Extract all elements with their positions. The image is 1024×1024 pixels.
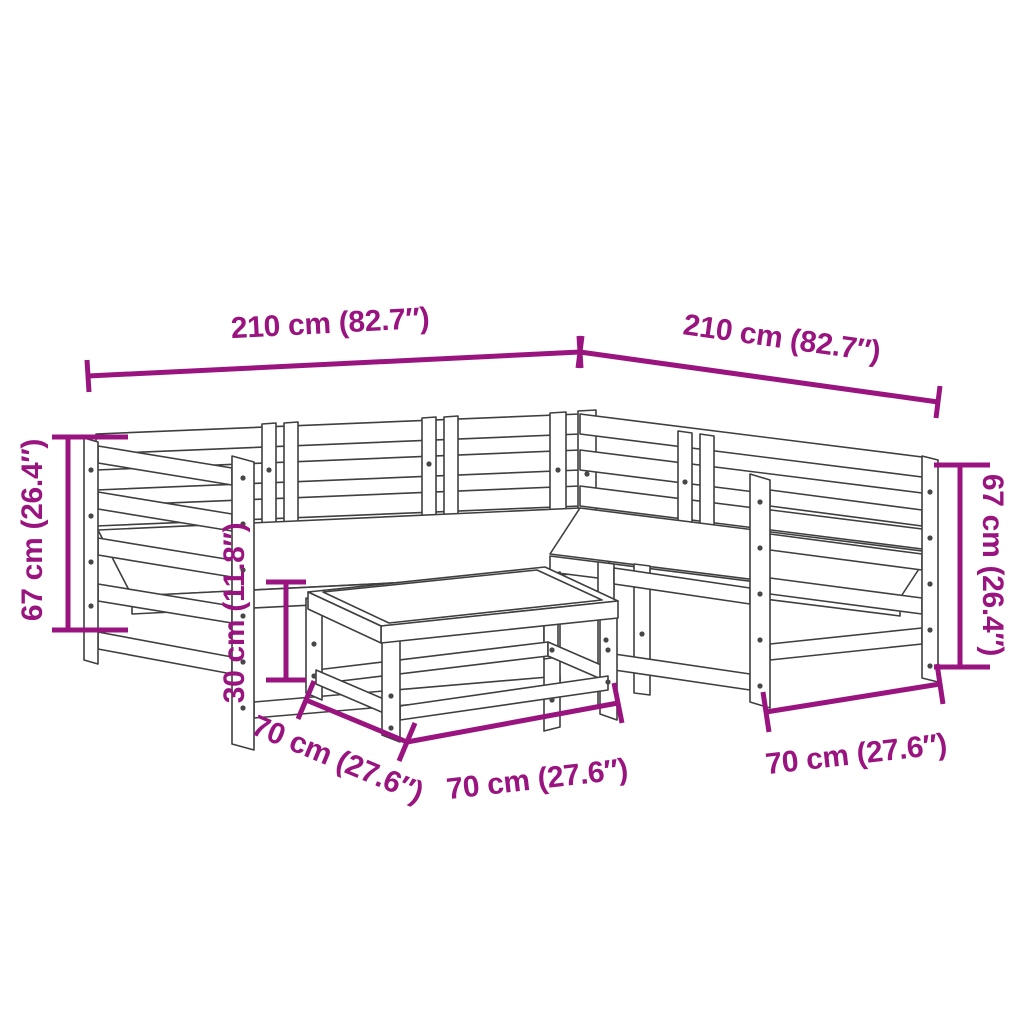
screw-icon bbox=[927, 663, 932, 668]
dim-tick bbox=[937, 664, 943, 704]
screw-icon bbox=[266, 467, 271, 472]
screw-icon bbox=[311, 673, 316, 678]
screw-icon bbox=[682, 479, 687, 484]
armrest-bottom-rail bbox=[98, 632, 232, 674]
dim-label-left-height: 67 cm (26.4″) bbox=[16, 439, 49, 621]
dim-label-top-right: 210 cm (82.7″) bbox=[681, 308, 882, 368]
screw-icon bbox=[555, 467, 560, 472]
screw-icon bbox=[757, 683, 762, 688]
screw-icon bbox=[549, 697, 554, 702]
screw-icon bbox=[88, 467, 93, 472]
screw-icon bbox=[311, 641, 316, 646]
dim-line-top-right bbox=[580, 352, 938, 402]
screw-icon bbox=[639, 631, 644, 636]
screw-icon bbox=[584, 471, 589, 476]
screw-icon bbox=[549, 647, 554, 652]
screw-icon bbox=[388, 725, 393, 730]
screw-icon bbox=[240, 475, 245, 480]
screw-icon bbox=[605, 679, 610, 684]
footstool bbox=[306, 567, 618, 742]
dim-label-sofa-depth: 70 cm (27.6″) bbox=[764, 728, 949, 781]
dim-tick bbox=[936, 386, 940, 418]
product-dimension-diagram: 210 cm (82.7″) 210 cm (82.7″) 67 cm (26.… bbox=[0, 0, 1024, 1024]
screw-icon bbox=[757, 591, 762, 596]
armrest-bottom-rail bbox=[770, 628, 922, 660]
stool-shelf-rail bbox=[316, 642, 548, 684]
screw-icon bbox=[388, 693, 393, 698]
screw-icon bbox=[88, 513, 93, 518]
screw-icon bbox=[927, 581, 932, 586]
back-slat bbox=[96, 414, 580, 454]
screw-icon bbox=[88, 559, 93, 564]
garden-sofa-set-drawing bbox=[84, 410, 938, 750]
armrest-post bbox=[750, 474, 770, 708]
screw-icon bbox=[927, 535, 932, 540]
screw-icon bbox=[757, 637, 762, 642]
screw-icon bbox=[240, 705, 245, 710]
dimension-drawing-canvas: 210 cm (82.7″) 210 cm (82.7″) 67 cm (26.… bbox=[0, 0, 1024, 1024]
dim-label-stool-height: 30 cm (11.8″) bbox=[218, 523, 251, 704]
screw-icon bbox=[88, 603, 93, 608]
dim-tick bbox=[87, 360, 89, 392]
screw-icon bbox=[927, 627, 932, 632]
dim-label-right-height: 67 cm (26.4″) bbox=[976, 474, 1009, 656]
screw-icon bbox=[927, 489, 932, 494]
dim-line-sofa-depth bbox=[766, 684, 940, 712]
screw-icon bbox=[426, 461, 431, 466]
dim-line-top-left bbox=[88, 352, 580, 376]
screw-icon bbox=[757, 545, 762, 550]
screw-icon bbox=[757, 499, 762, 504]
dim-label-top-left: 210 cm (82.7″) bbox=[230, 302, 430, 345]
screw-icon bbox=[603, 637, 608, 642]
screw-icon bbox=[605, 647, 610, 652]
dim-label-stool-width: 70 cm (27.6″) bbox=[445, 753, 630, 806]
